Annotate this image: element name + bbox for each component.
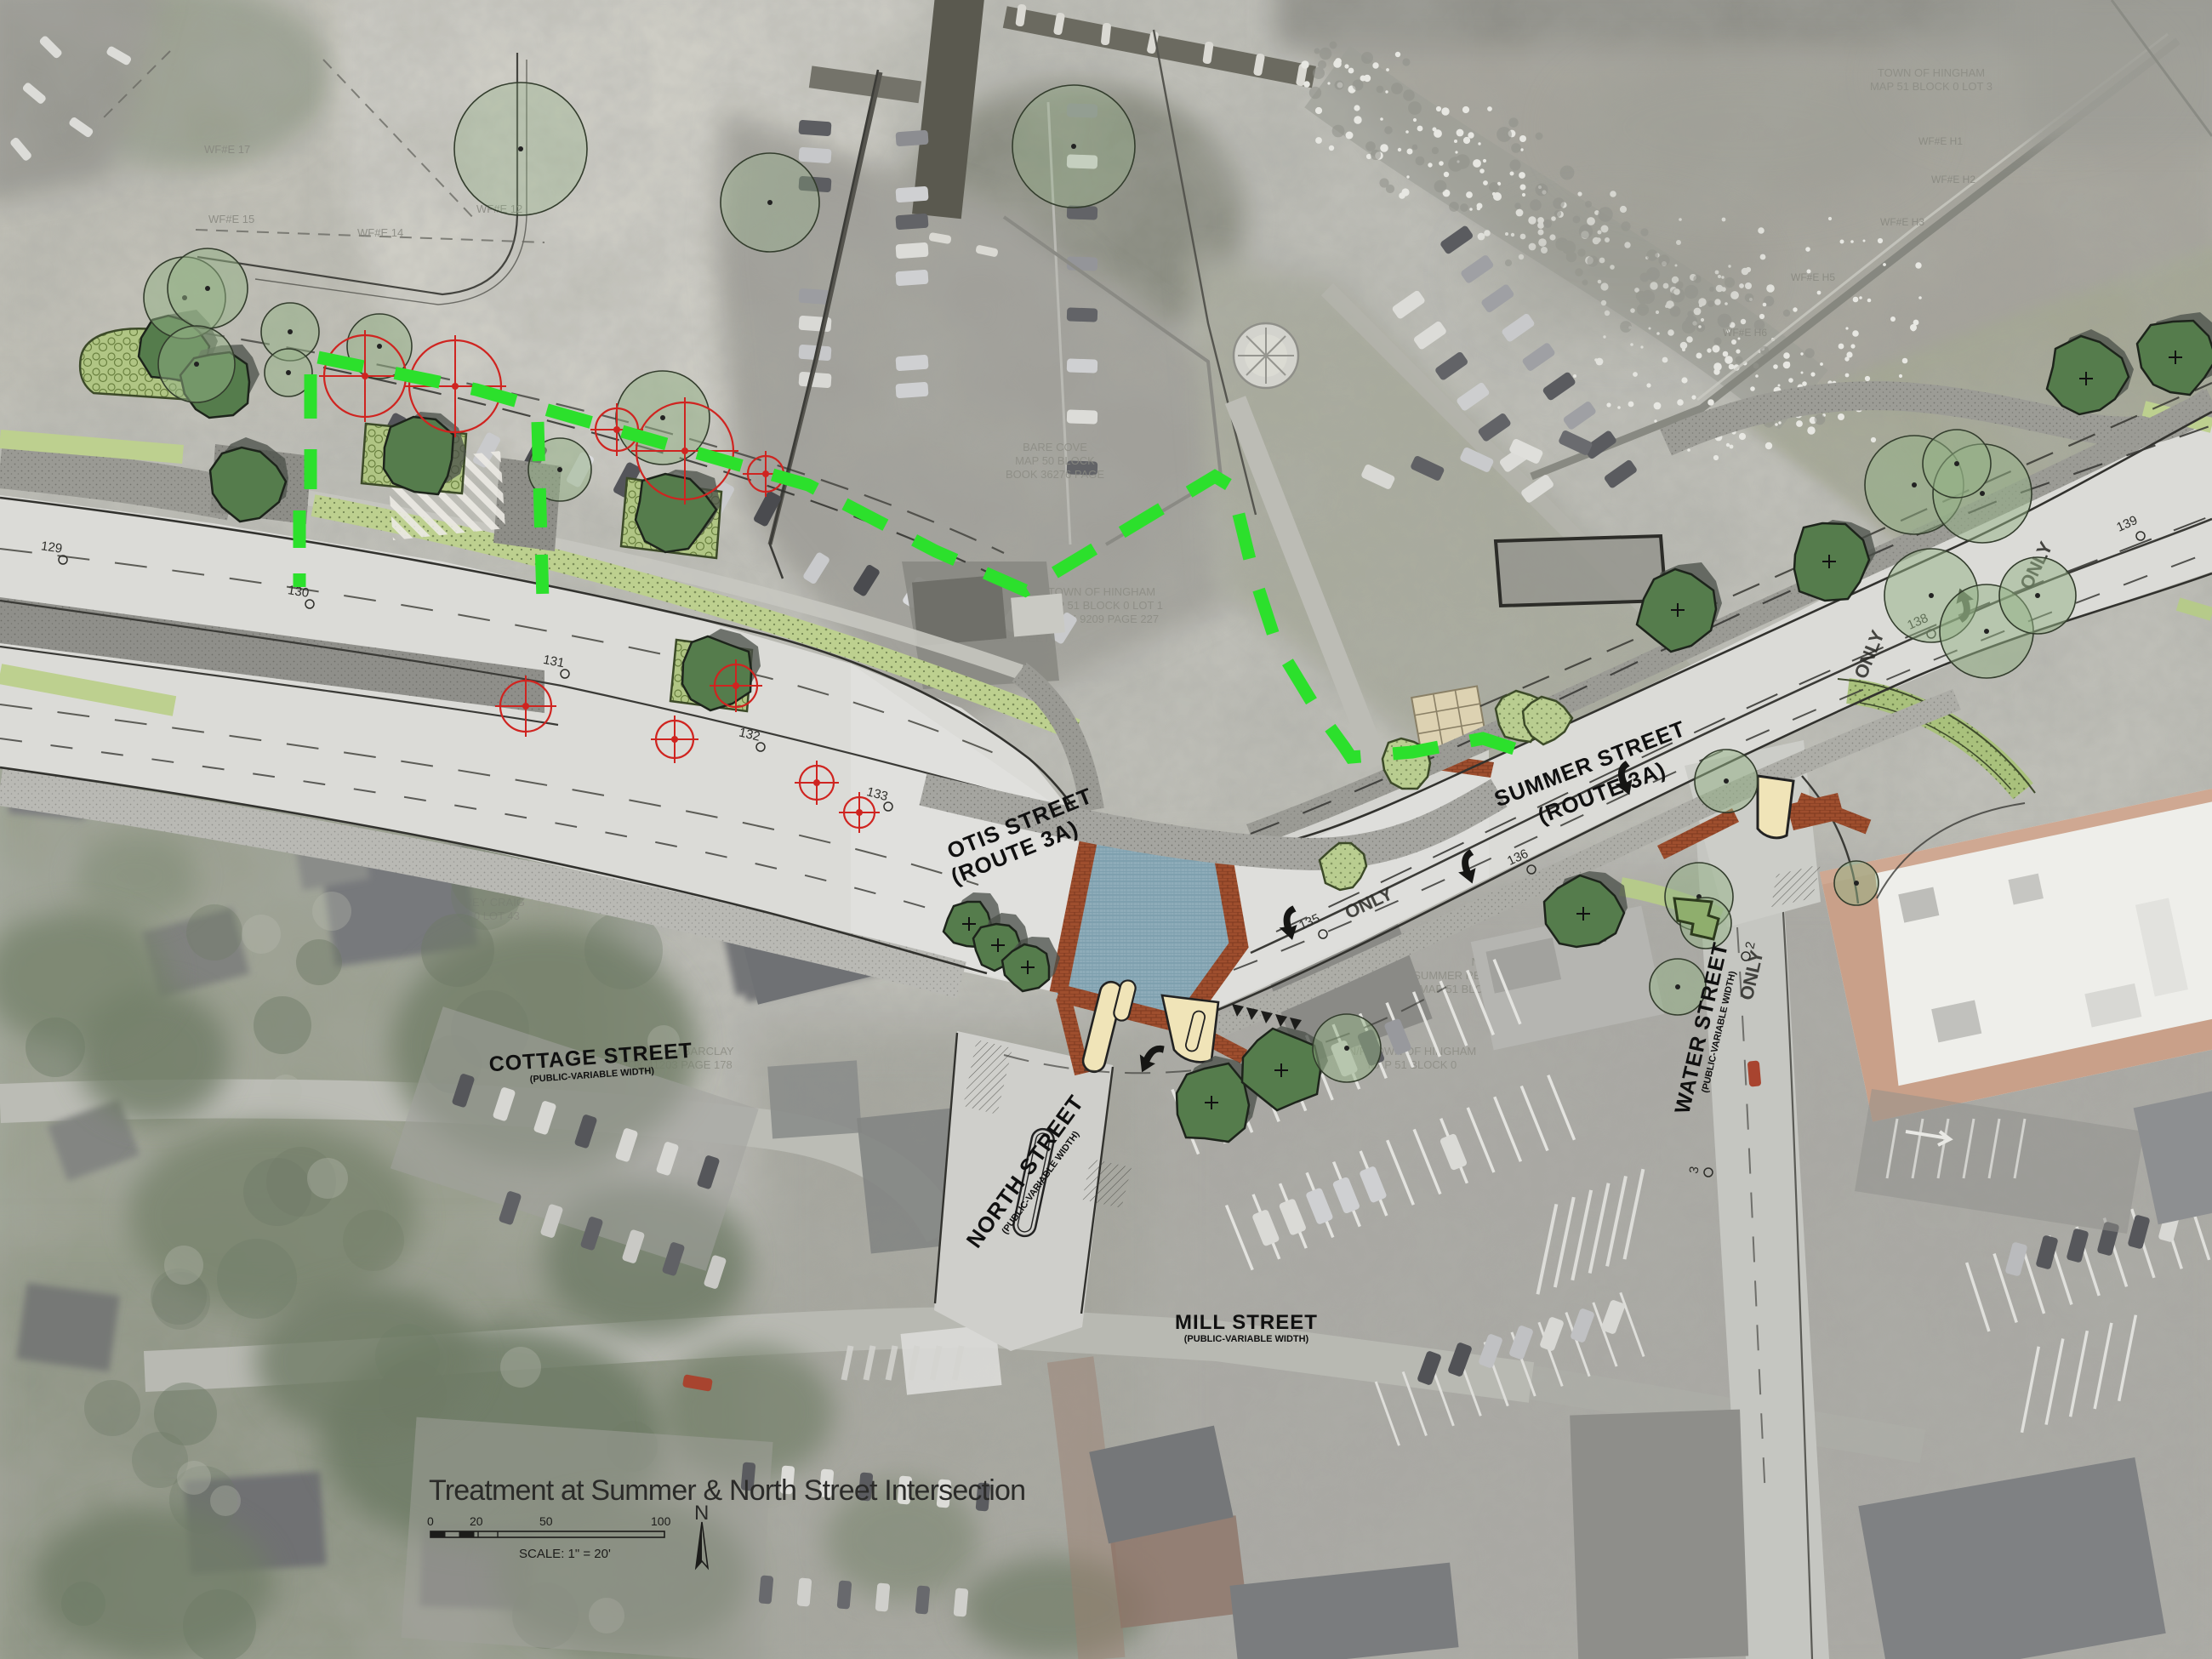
svg-text:MAP 50 BLOCK: MAP 50 BLOCK: [1015, 454, 1095, 467]
svg-text:MILL STREET: MILL STREET: [1175, 1311, 1318, 1334]
svg-text:50: 50: [539, 1514, 553, 1528]
svg-text:WF#E 14: WF#E 14: [357, 226, 403, 239]
svg-text:TOWN OF HINGHAM: TOWN OF HINGHAM: [1048, 585, 1155, 598]
svg-text:WF#E 15: WF#E 15: [208, 213, 254, 225]
svg-text:N: N: [694, 1502, 709, 1525]
svg-text:TOWN OF HINGHAM: TOWN OF HINGHAM: [1878, 66, 1985, 79]
svg-text:WF#E H5: WF#E H5: [1791, 271, 1835, 283]
svg-text:WF#E H2: WF#E H2: [1931, 174, 1975, 185]
svg-text:BARE COVE: BARE COVE: [1023, 441, 1087, 453]
svg-text:Treatment at Summer & North St: Treatment at Summer & North Street Inter…: [429, 1474, 1026, 1507]
svg-text:100: 100: [651, 1514, 671, 1528]
svg-text:MAP 51 BLOCK 0 LOT 3: MAP 51 BLOCK 0 LOT 3: [1870, 80, 1993, 93]
svg-text:20: 20: [470, 1514, 483, 1528]
svg-text:WF#E H3: WF#E H3: [1880, 216, 1924, 228]
svg-text:WF#E H1: WF#E H1: [1918, 135, 1963, 147]
svg-text:WF#E H6: WF#E H6: [1723, 327, 1767, 339]
svg-text:129: 129: [40, 539, 63, 556]
svg-text:SCALE: 1" = 20': SCALE: 1" = 20': [519, 1547, 611, 1561]
svg-text:BOOK 36276 PAGE: BOOK 36276 PAGE: [1006, 468, 1104, 481]
svg-text:WF#E 17: WF#E 17: [204, 143, 250, 156]
svg-text:0: 0: [427, 1514, 434, 1528]
svg-text:(PUBLIC-VARIABLE WIDTH): (PUBLIC-VARIABLE WIDTH): [1184, 1334, 1309, 1344]
